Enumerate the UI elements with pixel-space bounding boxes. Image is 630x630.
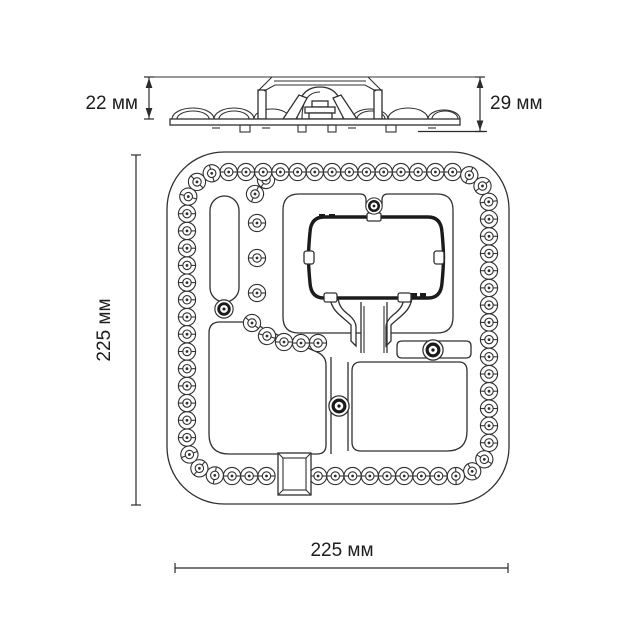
- connector-socket: [278, 453, 311, 495]
- led-lens: [324, 163, 341, 180]
- clip-mark: [329, 214, 335, 218]
- front-view: 225 мм 225 мм: [94, 152, 509, 573]
- led-lens: [178, 240, 195, 257]
- dimension-label-29mm: 29 мм: [490, 93, 543, 114]
- led-lens: [178, 257, 195, 274]
- left-tab: [304, 251, 314, 264]
- led-lens: [480, 314, 497, 331]
- led-lens: [310, 467, 327, 484]
- screw-post-right: [423, 340, 443, 360]
- led-lens: [410, 163, 427, 180]
- led-lens: [361, 467, 378, 484]
- led-lens: [480, 434, 498, 452]
- side-clamp-top: [312, 101, 328, 107]
- led-lens: [178, 222, 195, 239]
- side-view: 22 мм 29 мм: [85, 77, 542, 132]
- led-lens: [178, 308, 195, 325]
- pill-cutout: [210, 196, 239, 302]
- arrow-up-icon: [477, 78, 484, 88]
- led-lens: [241, 467, 258, 484]
- led-lens: [306, 163, 323, 180]
- led-lens: [378, 467, 395, 484]
- led-lens: [220, 163, 237, 180]
- led-lens: [178, 395, 195, 412]
- driver-bracket: [304, 213, 444, 302]
- led-lens: [375, 163, 392, 180]
- led-lens: [396, 467, 413, 484]
- side-mounting-pins: [212, 125, 436, 132]
- led-lens: [178, 377, 195, 394]
- led-lens: [178, 291, 195, 308]
- led-lens: [258, 467, 275, 484]
- plate-outline: [167, 152, 509, 504]
- technical-drawing-page: 22 мм 29 мм: [0, 0, 630, 630]
- dimension-width-225mm: 225 мм: [175, 540, 508, 573]
- side-left-leg: [258, 90, 266, 119]
- led-lens: [248, 249, 265, 266]
- led-lens: [272, 163, 289, 180]
- right-tab: [434, 251, 444, 264]
- led-lens: [256, 325, 277, 346]
- led-lens: [480, 297, 497, 314]
- clip-mark: [420, 293, 426, 297]
- side-right-leg: [374, 90, 382, 119]
- screw-post-left: [215, 300, 233, 318]
- perimeter-led-ring: [178, 163, 499, 486]
- led-lens: [480, 228, 497, 245]
- led-lens: [444, 163, 461, 180]
- led-lens: [292, 334, 309, 351]
- led-lens: [480, 400, 497, 417]
- led-lens: [413, 467, 430, 484]
- led-lens: [430, 467, 447, 484]
- led-lens: [178, 274, 195, 291]
- side-clamp-mid: [305, 107, 335, 113]
- led-lens: [223, 467, 240, 484]
- dimension-label-height: 225 мм: [94, 298, 115, 361]
- side-board: [170, 119, 460, 125]
- led-lens: [309, 334, 326, 351]
- led-lens: [480, 417, 497, 434]
- cable-funnel: [330, 298, 412, 353]
- led-lens: [178, 360, 195, 377]
- led-lens: [480, 211, 497, 228]
- led-module-drawing: 22 мм 29 мм: [0, 0, 630, 630]
- led-lens: [178, 326, 195, 343]
- dimension-22mm: 22 мм: [85, 77, 154, 119]
- lower-right-panel: [352, 362, 467, 451]
- clip-mark: [319, 214, 325, 218]
- led-lens: [480, 279, 497, 296]
- led-lens: [178, 343, 195, 360]
- led-lens: [237, 163, 254, 180]
- led-lens: [480, 262, 497, 279]
- screw-post-bottom: [329, 396, 349, 416]
- led-lens: [480, 383, 497, 400]
- screw-post-top: [366, 198, 382, 214]
- clip-mark: [411, 293, 417, 297]
- hook-tab: [398, 293, 411, 302]
- led-lens: [427, 163, 444, 180]
- arrow-down-icon: [146, 108, 153, 118]
- led-lens: [341, 163, 358, 180]
- led-lens: [248, 214, 265, 231]
- led-lens: [178, 205, 195, 222]
- arrow-up-icon: [146, 78, 153, 88]
- led-lens: [480, 348, 497, 365]
- side-clamp-low: [309, 113, 332, 119]
- arrow-down-icon: [477, 121, 484, 131]
- led-lens: [447, 467, 465, 485]
- led-lens: [178, 412, 195, 429]
- led-lens: [248, 284, 265, 301]
- led-lens: [480, 331, 497, 348]
- led-lens: [327, 467, 344, 484]
- led-lens: [392, 163, 409, 180]
- led-lens: [275, 333, 292, 350]
- led-lens: [480, 245, 497, 262]
- dimension-label-22mm: 22 мм: [85, 93, 138, 114]
- led-lens: [480, 365, 497, 382]
- dimension-label-width: 225 мм: [310, 540, 373, 561]
- hook-tab: [324, 293, 337, 302]
- led-lens: [255, 163, 272, 180]
- led-lens: [344, 467, 361, 484]
- led-lens: [358, 163, 375, 180]
- led-lens: [289, 163, 306, 180]
- dimension-height-225mm: 225 мм: [94, 155, 141, 505]
- led-lens: [178, 429, 195, 446]
